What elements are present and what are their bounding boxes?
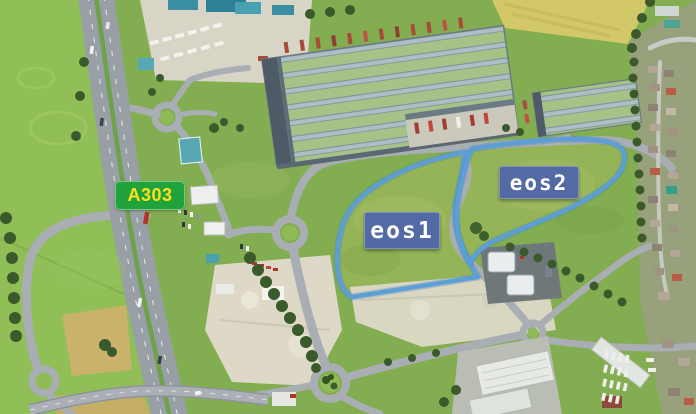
aerial-scene: [0, 0, 696, 414]
plot-label-eos1[interactable]: eos1: [364, 212, 440, 249]
a303-road-sign: A303: [115, 181, 185, 210]
aerial-masterplan: eos1 eos2 A303: [0, 0, 696, 414]
plot-label-eos2[interactable]: eos2: [499, 166, 579, 199]
